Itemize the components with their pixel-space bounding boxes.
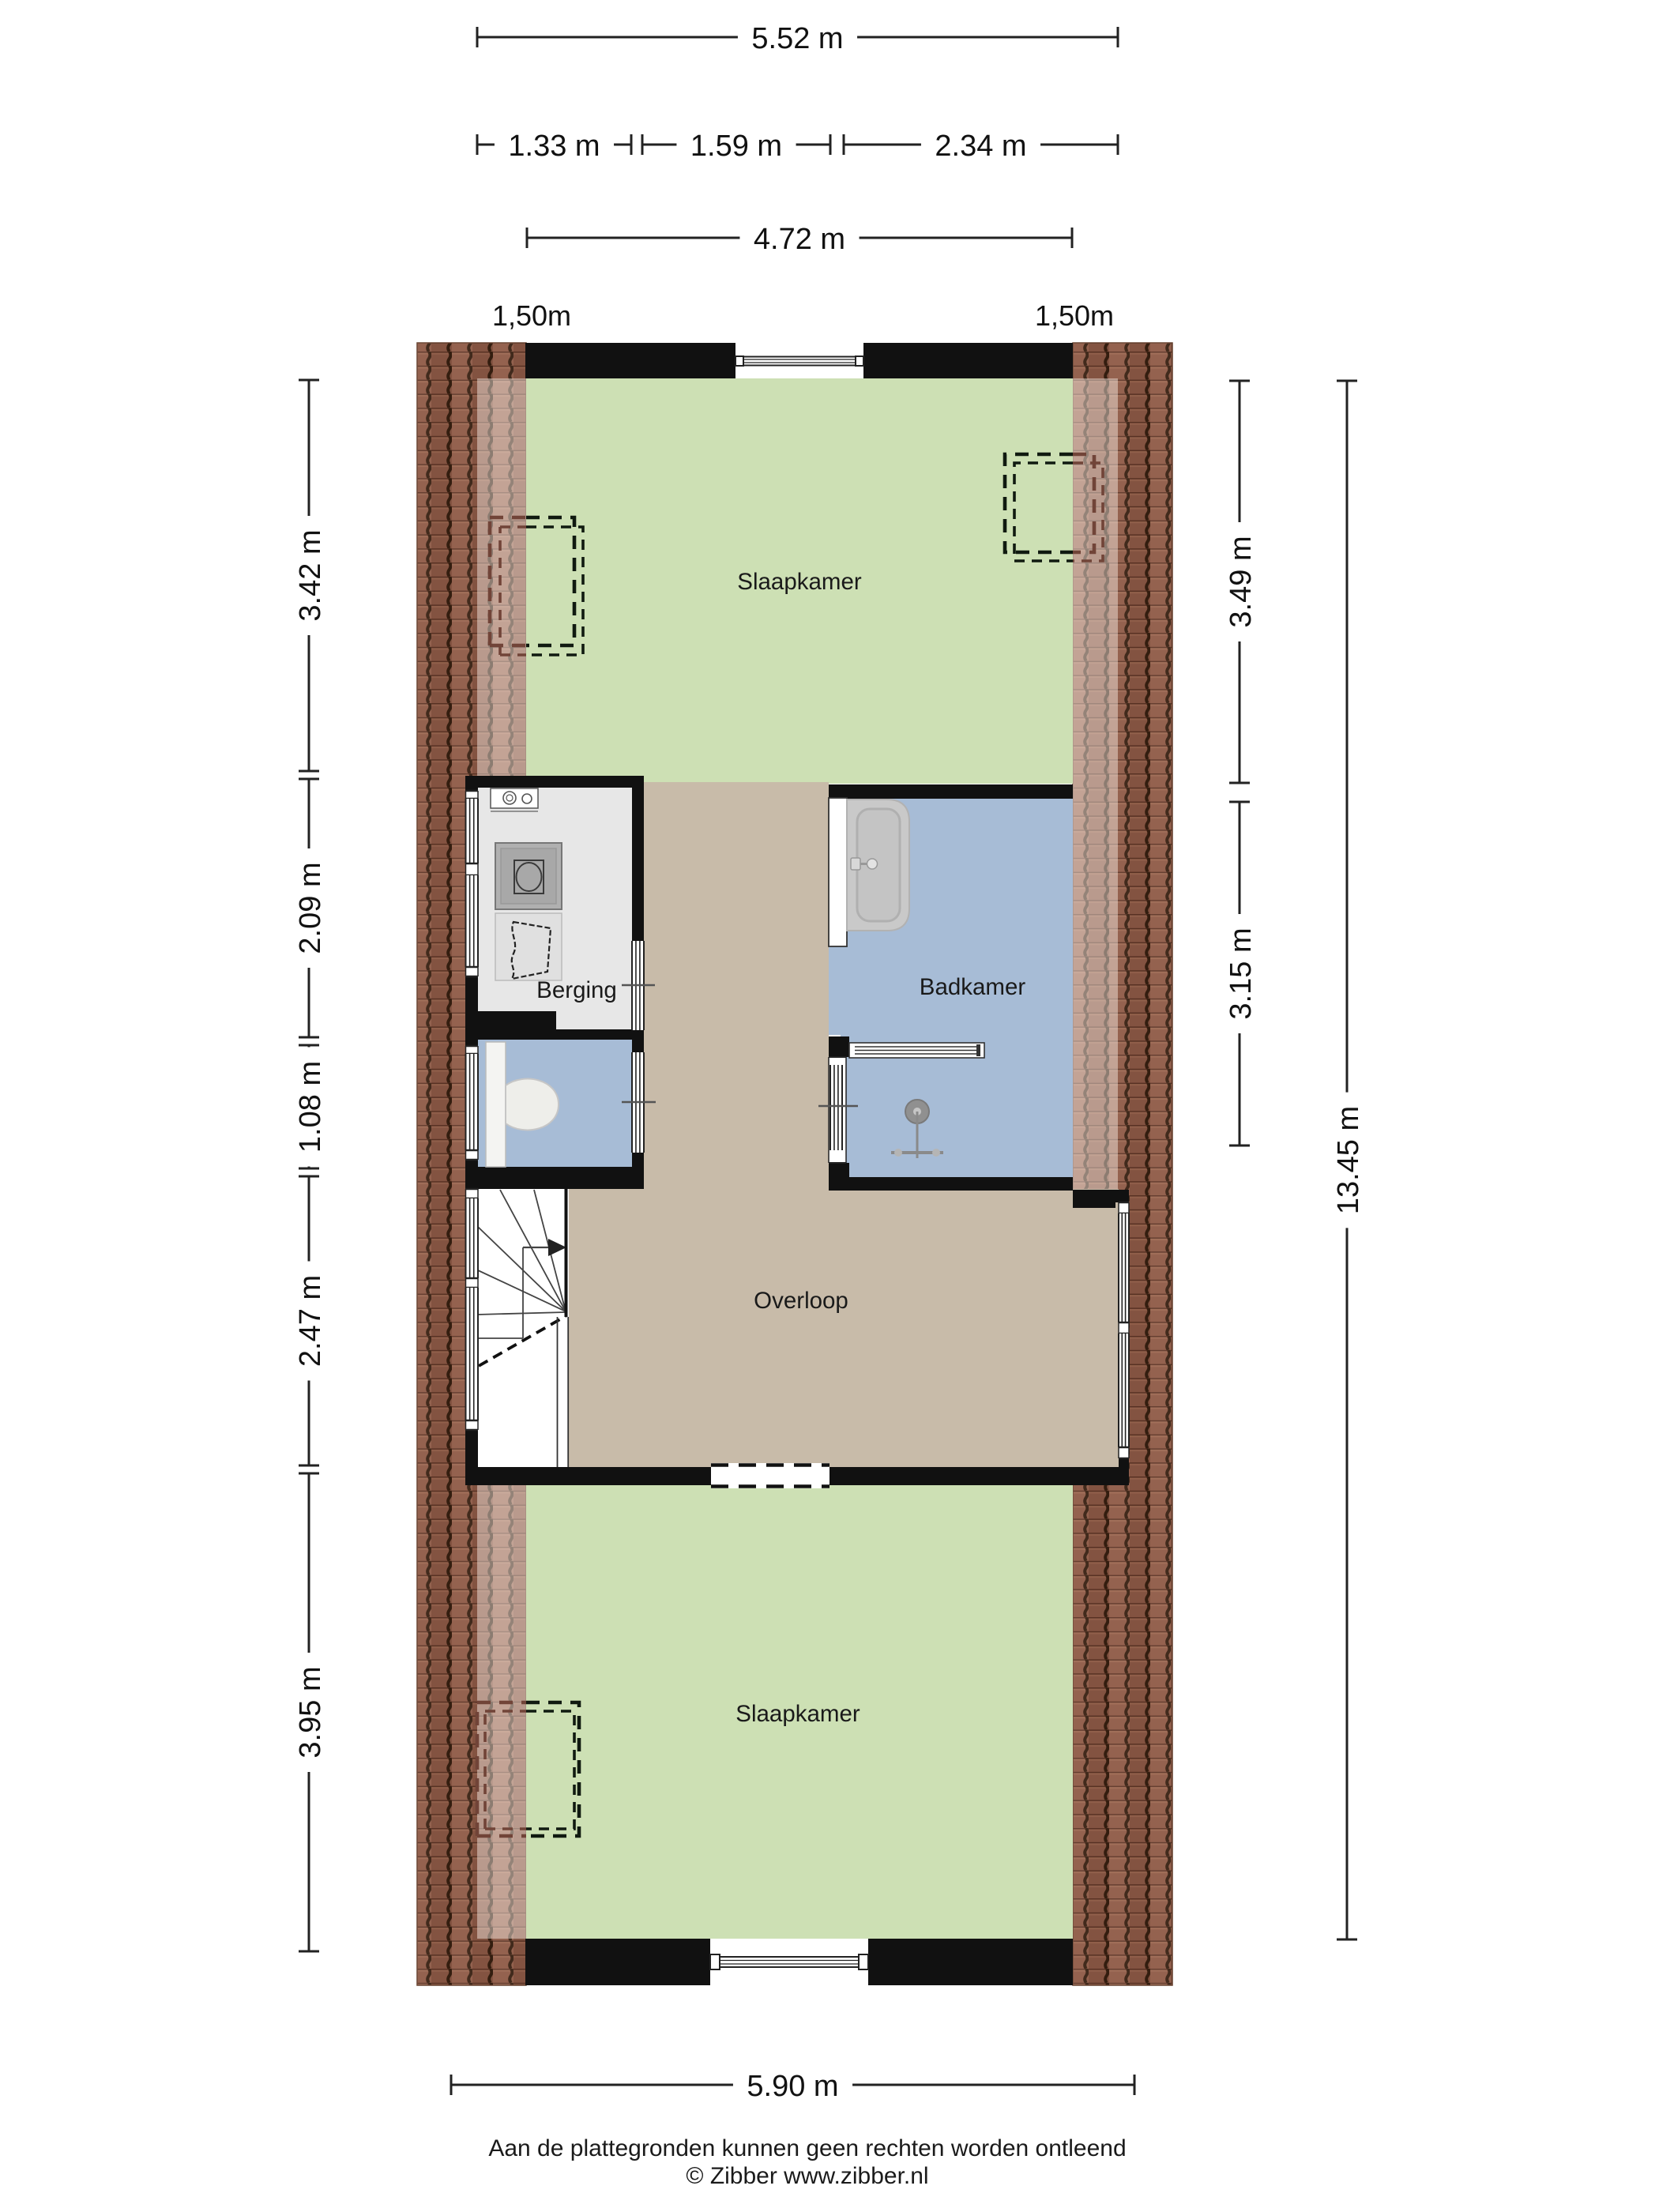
svg-text:5.90 m: 5.90 m [747,2070,838,2103]
svg-text:Overloop: Overloop [754,1288,848,1314]
svg-text:1.33 m: 1.33 m [508,130,600,163]
svg-text:13.45 m: 13.45 m [1332,1106,1365,1214]
svg-text:5.52 m: 5.52 m [751,22,843,55]
svg-text:1,50m: 1,50m [1035,299,1114,332]
svg-text:Slaapkamer: Slaapkamer [737,569,862,595]
svg-text:Aan de plattegronden kunnen ge: Aan de plattegronden kunnen geen rechten… [488,2135,1126,2161]
svg-text:Slaapkamer: Slaapkamer [735,1701,860,1727]
svg-text:2.47 m: 2.47 m [294,1275,327,1367]
svg-text:1.59 m: 1.59 m [690,130,782,163]
svg-text:1.08 m: 1.08 m [294,1061,327,1153]
svg-text:Berging: Berging [536,977,617,1003]
svg-text:4.72 m: 4.72 m [754,223,845,256]
svg-text:3.49 m: 3.49 m [1224,536,1258,627]
svg-text:3.95 m: 3.95 m [294,1666,327,1758]
svg-text:© Zibber www.zibber.nl: © Zibber www.zibber.nl [686,2163,928,2189]
svg-text:Badkamer: Badkamer [920,974,1026,1000]
svg-text:2.09 m: 2.09 m [294,862,327,954]
svg-text:2.34 m: 2.34 m [935,130,1026,163]
svg-text:3.15 m: 3.15 m [1224,927,1258,1019]
svg-text:3.42 m: 3.42 m [294,529,327,621]
svg-text:1,50m: 1,50m [492,299,571,332]
